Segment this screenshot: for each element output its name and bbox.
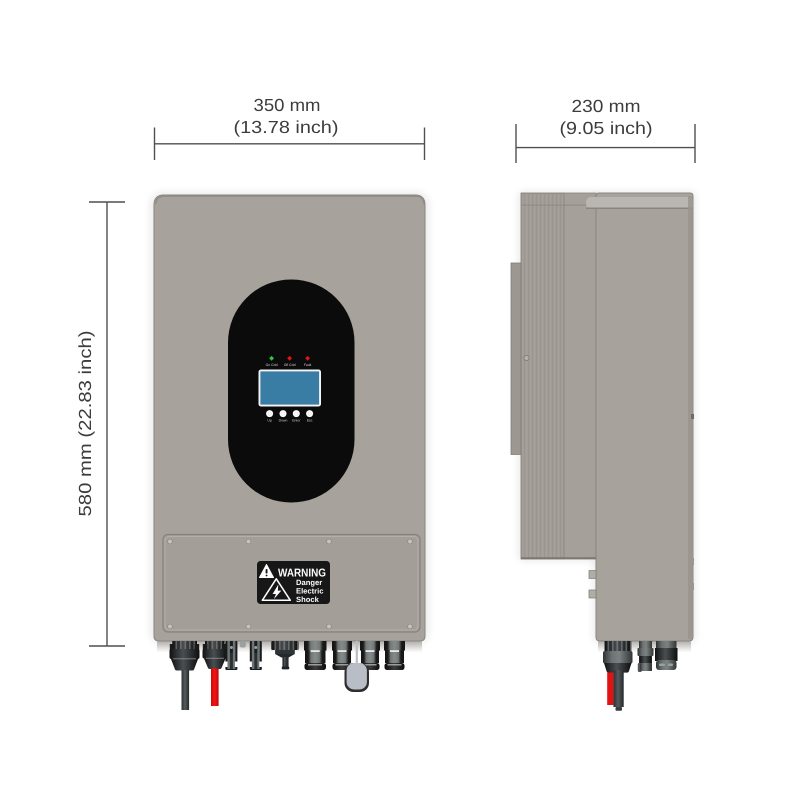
svg-text:Shock: Shock [296,595,320,604]
svg-text:On Grid: On Grid [266,363,278,367]
svg-text:Fault: Fault [304,363,312,367]
svg-text:Esc: Esc [307,419,313,423]
svg-text:Up: Up [267,419,271,423]
svg-text:Off Grid: Off Grid [284,363,296,367]
svg-text:(13.78 inch): (13.78 inch) [234,117,339,137]
svg-text:Enter: Enter [292,419,301,423]
svg-text:350 mm: 350 mm [254,95,321,115]
svg-text:230 mm: 230 mm [572,96,641,116]
svg-text:580 mm (22.83 inch): 580 mm (22.83 inch) [75,331,95,517]
svg-text:Down: Down [279,419,288,423]
svg-text:(9.05 inch): (9.05 inch) [560,118,653,138]
